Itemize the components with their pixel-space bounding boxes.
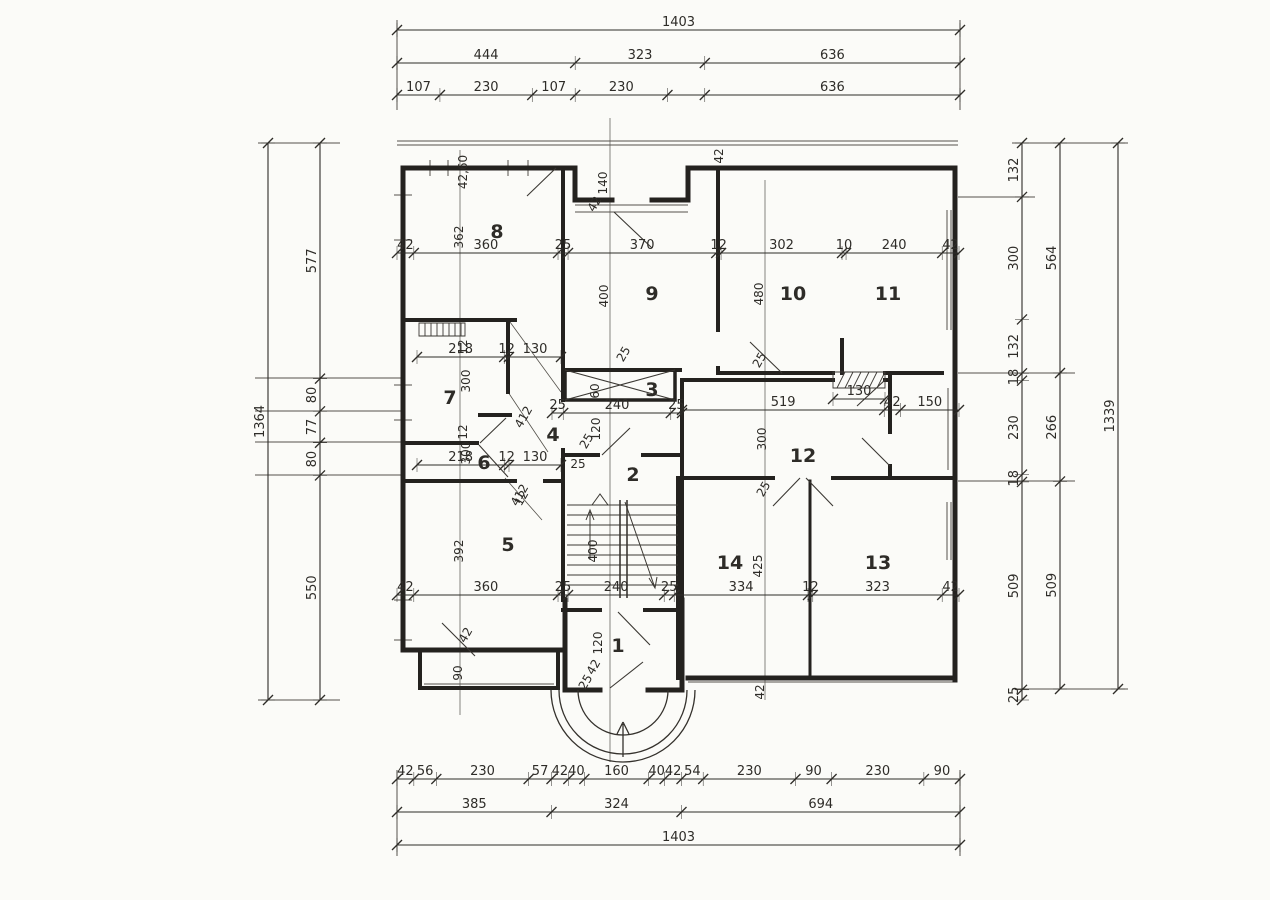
room-number-4: 4: [546, 424, 559, 446]
room-number-3: 3: [645, 379, 658, 401]
dim-chain-top-total: 1403: [392, 15, 965, 37]
dim-label: 300: [459, 370, 473, 393]
dim-label: 480: [752, 283, 766, 306]
dim-chain-bottom-mid: 385324694: [392, 797, 965, 819]
dim-label: 132: [1007, 158, 1022, 183]
dim-chain-right-mid: 564266509: [1045, 138, 1067, 694]
dim-label: 10: [836, 238, 853, 253]
dim-label: 25: [661, 580, 678, 595]
dim-label: 42: [753, 684, 767, 699]
dim-label: 140: [596, 172, 610, 195]
dim-label: 1339: [1103, 399, 1118, 432]
dim-label: 230: [737, 764, 762, 779]
dim-label: 90: [934, 764, 951, 779]
dim-label: 519: [771, 395, 796, 410]
dim-label: 18: [1007, 470, 1022, 487]
room-number-11: 11: [875, 283, 901, 305]
dim-label: 12: [498, 342, 515, 357]
dim-label: 302: [769, 238, 794, 253]
room-number-7: 7: [443, 387, 456, 409]
dim-label: 550: [305, 575, 320, 600]
room-number-1: 1: [611, 635, 624, 657]
room-number-10: 10: [780, 283, 806, 305]
dim-label: 230: [474, 80, 499, 95]
dim-label: 12: [802, 580, 819, 595]
dim-label: 56: [417, 764, 434, 779]
dim-chain-top-fine: 107230107230636: [392, 80, 965, 102]
shelf-hatch: [419, 323, 465, 336]
dim-label: 60: [588, 383, 602, 398]
dim-label: 323: [628, 48, 653, 63]
dim-label: 1364: [253, 405, 268, 438]
dim-chain-room7-row: 21812130: [412, 342, 566, 364]
dim-label: 300: [1007, 246, 1022, 271]
dim-label: 42,60: [456, 155, 470, 189]
dim-chain-left-total: 1364: [253, 138, 275, 705]
dim-label: 300: [459, 442, 473, 465]
dim-label: 323: [865, 580, 890, 595]
dim-chain-top-mid: 444323636: [392, 48, 965, 70]
dim-label: 1403: [662, 15, 695, 30]
dim-label: 12: [456, 424, 470, 439]
dim-label: 42: [552, 764, 569, 779]
eaves-lines: [397, 141, 958, 145]
dim-label: 12: [498, 450, 515, 465]
dim-label: 509: [1045, 573, 1060, 598]
room-number-2: 2: [626, 464, 639, 486]
dim-label: 25: [754, 479, 774, 499]
dim-label: 130: [847, 384, 872, 399]
room-number-12: 12: [790, 445, 816, 467]
thin-lines-layer: [255, 20, 1128, 856]
dim-label: 636: [820, 48, 845, 63]
dim-chain-room12-row: 51942150: [677, 395, 964, 417]
dim-label: 425: [751, 555, 765, 578]
dim-chain-bottom-fine: 42562305742401604042542309023090: [392, 764, 965, 786]
room-number-13: 13: [865, 552, 891, 574]
dim-label: 564: [1045, 246, 1060, 271]
dim-label: 230: [470, 764, 495, 779]
dim-label: 362: [452, 226, 466, 249]
floor-plan-svg: 1403444323636107230107230636425623057424…: [0, 0, 1270, 900]
dim-label: 25: [570, 457, 585, 471]
dim-label: 324: [604, 797, 629, 812]
room-number-6: 6: [477, 452, 490, 474]
dim-label: 360: [474, 580, 499, 595]
dim-label: 42: [942, 580, 959, 595]
dim-label: 266: [1045, 415, 1060, 440]
dim-label: 577: [305, 248, 320, 273]
dim-chain-right-fine: 132300132182301850925: [1007, 138, 1029, 705]
dim-label: 25: [555, 238, 572, 253]
dim-label: 25: [614, 344, 634, 364]
dim-label: 120: [591, 632, 605, 655]
room-number-8: 8: [490, 221, 503, 243]
dim-label: 42: [397, 238, 414, 253]
dim-chain-plan-row-upper: 4236025370123021024042: [392, 238, 964, 260]
dim-label: 57: [532, 764, 549, 779]
dim-label: 25: [750, 350, 770, 370]
dim-label: 240: [604, 580, 629, 595]
dim-label: 40: [648, 764, 665, 779]
dim-label: 42: [665, 764, 682, 779]
dim-label: 80: [305, 387, 320, 404]
dim-label: 107: [541, 80, 566, 95]
dim-label: 80: [305, 451, 320, 468]
dim-label: 694: [808, 797, 833, 812]
dim-label: 230: [865, 764, 890, 779]
dim-label: 132: [1007, 334, 1022, 359]
dim-label: 370: [630, 238, 655, 253]
dim-label: 25: [549, 398, 566, 413]
dim-label: 42: [712, 148, 726, 163]
dim-label: 230: [1007, 415, 1022, 440]
room-number-5: 5: [501, 534, 514, 556]
dim-label: 300: [755, 428, 769, 451]
dim-label: 240: [882, 238, 907, 253]
dim-label: 54: [684, 764, 701, 779]
entrance-steps: [551, 690, 695, 762]
dim-label: 90: [805, 764, 822, 779]
room-number-14: 14: [717, 552, 743, 574]
dim-label: 385: [462, 797, 487, 812]
dim-chain-left-fine: 577807780550: [305, 138, 327, 705]
dim-label: 12: [710, 238, 727, 253]
dim-chain-bottom-total: 1403: [392, 830, 965, 852]
dim-label: 240: [605, 398, 630, 413]
dim-label: 444: [474, 48, 499, 63]
dim-label: 334: [729, 580, 754, 595]
floorplan-sheet: 1403444323636107230107230636425623057424…: [0, 0, 1270, 900]
dim-label: 392: [452, 540, 466, 563]
dim-label: 130: [523, 342, 548, 357]
dim-label: 636: [820, 80, 845, 95]
dim-label: 18: [1007, 369, 1022, 386]
dim-label: 400: [586, 540, 600, 563]
dim-label: 42: [397, 764, 414, 779]
dim-label: 77: [305, 419, 320, 436]
dim-label: 400: [597, 285, 611, 308]
dim-label: 42: [456, 625, 476, 645]
dim-label: 42: [585, 194, 605, 214]
dim-label: 12: [456, 339, 470, 354]
dim-label: 130: [523, 450, 548, 465]
dim-chain-right-total: 1339: [1103, 138, 1125, 694]
dim-label: 42: [397, 580, 414, 595]
entrance-arrow: [617, 722, 629, 757]
dim-label: 150: [917, 395, 942, 410]
dim-label: 25: [1007, 687, 1022, 704]
dim-label: 412: [512, 404, 536, 431]
dim-label: 230: [609, 80, 634, 95]
dim-label: 509: [1007, 573, 1022, 598]
room-number-9: 9: [645, 283, 658, 305]
dim-label: 40: [568, 764, 585, 779]
dim-label: 107: [406, 80, 431, 95]
dim-label: 1403: [662, 830, 695, 845]
dim-label: 25: [555, 580, 572, 595]
dim-label: 42: [942, 238, 959, 253]
dim-label: 160: [604, 764, 629, 779]
dim-label: 90: [451, 665, 465, 680]
